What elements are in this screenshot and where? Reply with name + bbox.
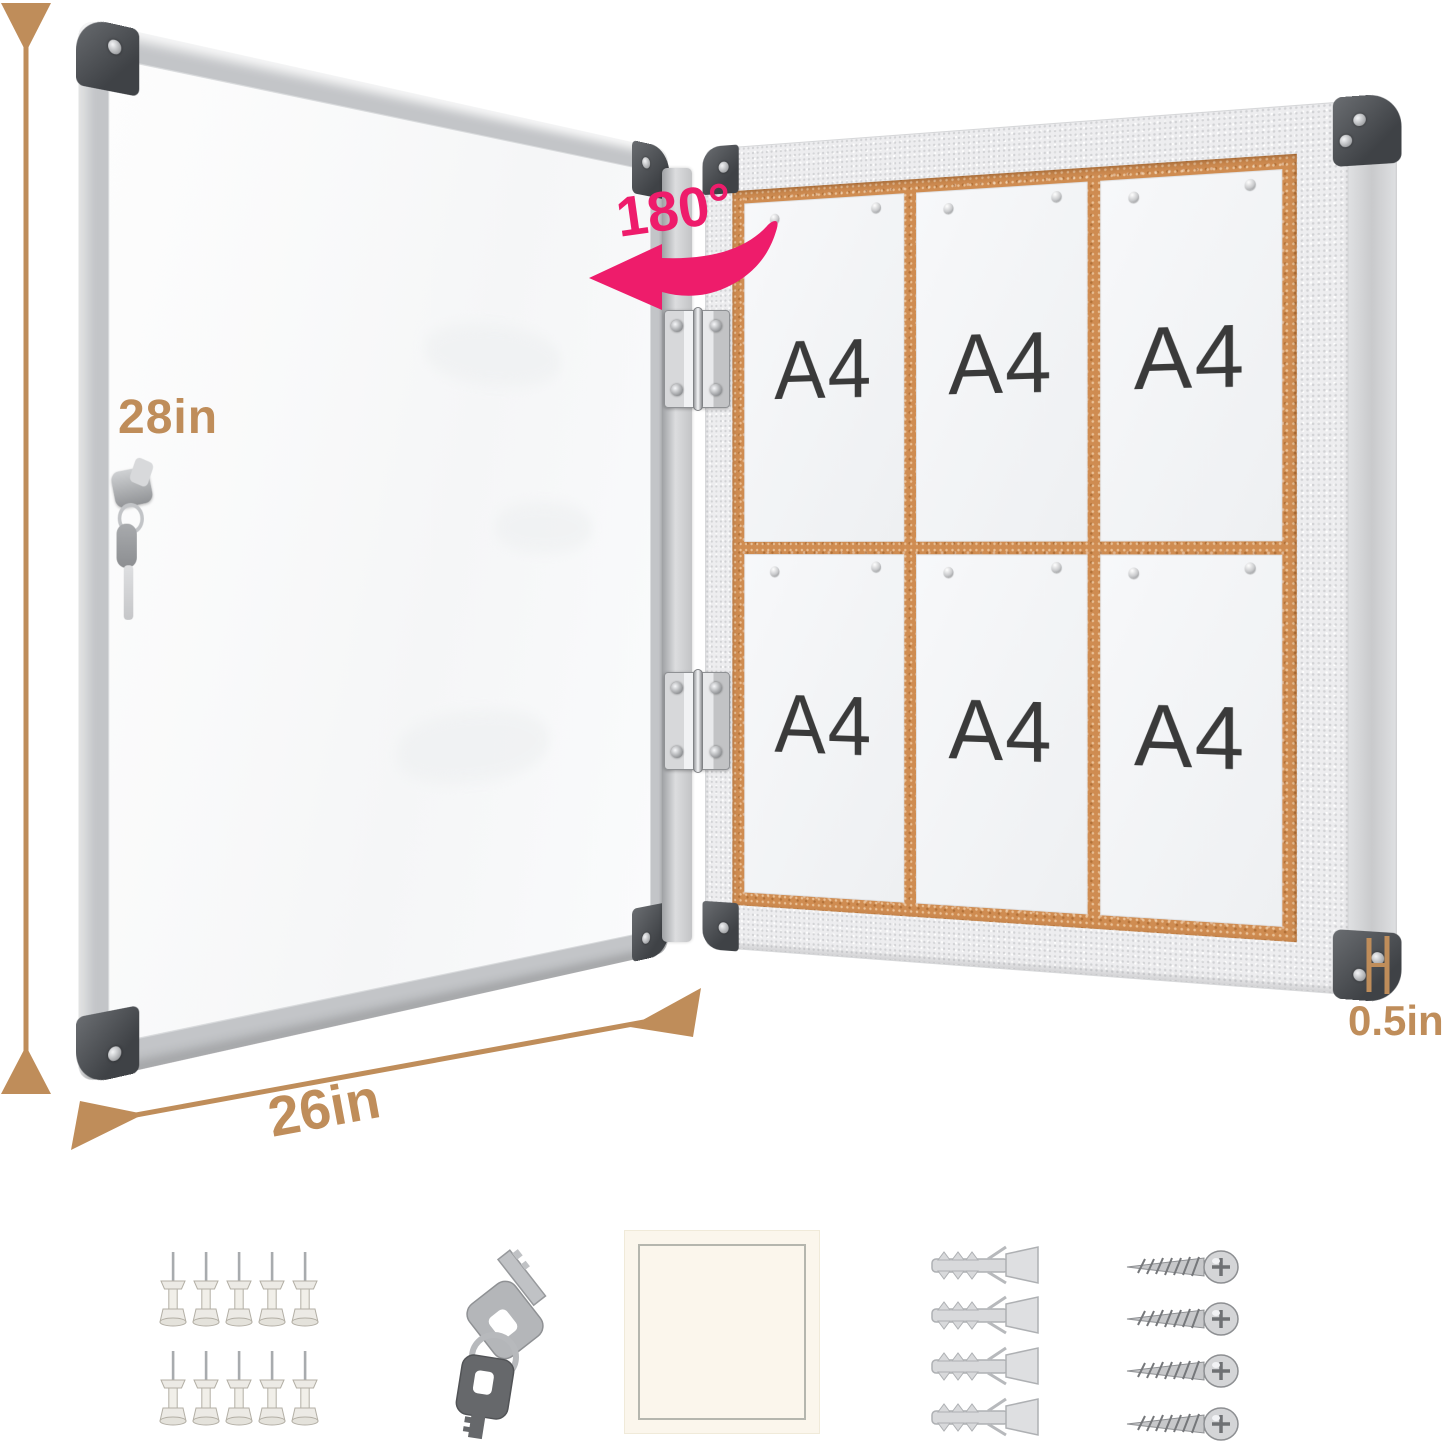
reflection-smudge: [425, 317, 561, 391]
paper-pin-icon: [770, 566, 779, 576]
paper-pin-icon: [1244, 179, 1255, 191]
depth-label: 0.5in: [1348, 1000, 1444, 1042]
paper-pin-icon: [871, 561, 881, 571]
adhesive-pad: [624, 1230, 820, 1434]
paper-pin-icon: [1244, 562, 1255, 573]
reflection-smudge: [495, 501, 592, 554]
product-illustration: A4 A4 A4 A4 A4: [0, 0, 1445, 1452]
paper-pin-icon: [1052, 562, 1062, 573]
door-panel: [79, 19, 668, 1084]
depth-bracket: [1358, 930, 1402, 1002]
bottom-hinge-icon: [664, 672, 730, 770]
screws-group: [1124, 1248, 1244, 1452]
paper-pin-icon: [944, 567, 954, 577]
paper-pin-icon: [1052, 191, 1062, 202]
lock-key-blade: [124, 565, 134, 620]
reflection-smudge: [397, 705, 549, 792]
a4-paper: A4: [1100, 169, 1283, 541]
paper-pin-icon: [944, 203, 954, 214]
paper-pin-icon: [1129, 567, 1140, 578]
paper-pin-icon: [1129, 191, 1140, 202]
cabinet-side-edge: [1342, 102, 1397, 994]
height-label: 28in: [118, 394, 218, 442]
lock-key-icon: [117, 524, 137, 568]
corner-cap: [76, 15, 139, 96]
a4-paper: A4: [916, 554, 1087, 914]
corner-cap: [702, 901, 738, 952]
height-arrow: [0, 0, 60, 1110]
a4-label: A4: [1134, 685, 1246, 791]
a4-paper: A4: [916, 182, 1087, 542]
a4-paper: A4: [1100, 554, 1283, 926]
a4-label: A4: [774, 677, 873, 776]
paper-pin-icon: [871, 202, 881, 213]
cork-board: A4 A4 A4 A4 A4: [732, 154, 1297, 943]
cabinet-panel: A4 A4 A4 A4 A4: [705, 101, 1349, 995]
keys-icon: [432, 1235, 592, 1452]
width-arrow: [55, 975, 735, 1160]
rotation-arrow-icon: [565, 200, 800, 340]
push-pins-group: [158, 1252, 322, 1437]
a4-label: A4: [948, 681, 1053, 784]
wall-anchors-group: [926, 1244, 1046, 1449]
corner-cap: [1333, 93, 1402, 167]
adhesive-pad-inner: [638, 1244, 806, 1420]
a4-label: A4: [948, 313, 1053, 416]
a4-label: A4: [1134, 305, 1246, 411]
a4-paper: A4: [744, 554, 904, 903]
